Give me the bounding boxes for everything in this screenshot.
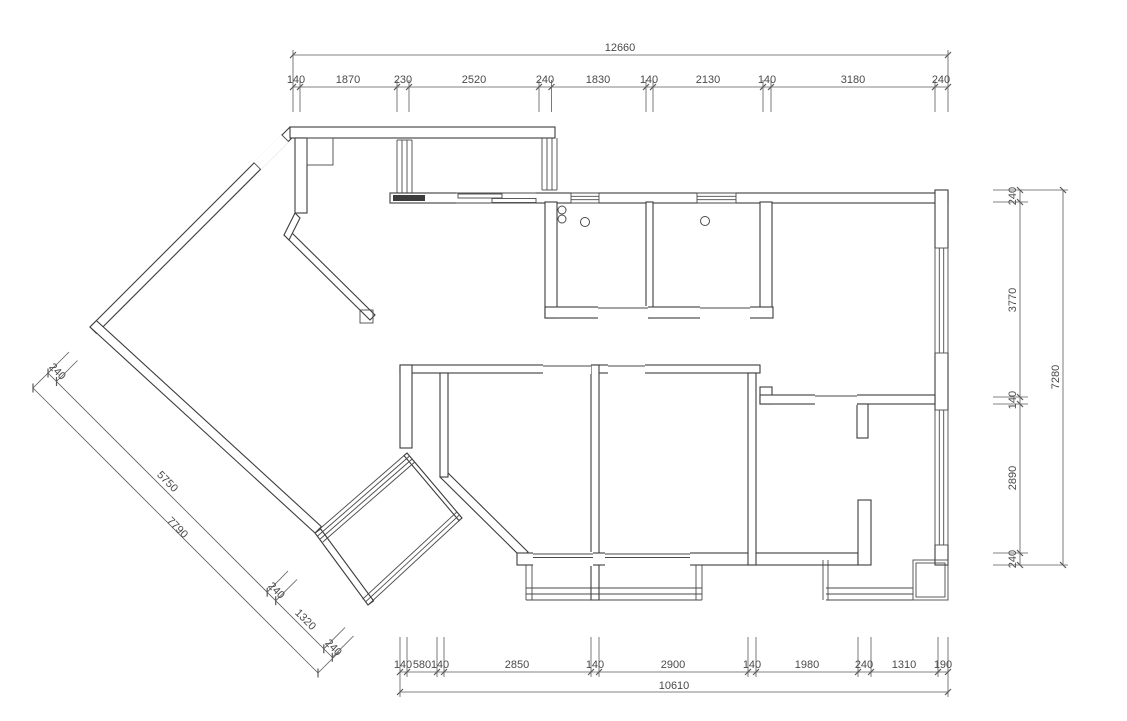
dim-label: 2900 (661, 659, 685, 671)
dim-label: 2890 (1007, 466, 1019, 490)
fixtures-layer (558, 206, 710, 227)
floor-plan-canvas: 1401870230252024018301402130140318024012… (0, 0, 1127, 721)
wall (858, 500, 871, 565)
wall (290, 127, 555, 138)
wall (440, 373, 448, 477)
dim-label: 190 (934, 659, 952, 671)
plan-line (320, 459, 412, 539)
wall (748, 373, 756, 565)
wall-diagonal (315, 529, 374, 605)
dim-label: 240 (932, 74, 950, 86)
wall-opening (934, 248, 949, 353)
dim-label: 240 (855, 659, 873, 671)
dim-label: 140 (743, 659, 761, 671)
fixture-circle (701, 217, 710, 226)
wall-opening (697, 192, 736, 204)
dim-label: 140 (287, 74, 305, 86)
dim-label: 1830 (586, 74, 610, 86)
plan-line (323, 462, 415, 542)
wall (646, 202, 653, 318)
dim-label: 1980 (795, 659, 819, 671)
plan-detail (916, 563, 945, 597)
door-opening (254, 135, 289, 170)
plan-line (368, 518, 462, 605)
dim-label: 140 (394, 659, 412, 671)
dim-label: 5750 (154, 469, 180, 495)
dim-label: 1320 (292, 607, 318, 633)
dim-label: 240 (536, 74, 554, 86)
dim-label: 12660 (605, 42, 636, 54)
wall (295, 138, 307, 213)
dim-label: 240 (46, 361, 67, 382)
wall (400, 365, 412, 448)
wall-opening (571, 192, 599, 204)
plan-line (318, 456, 410, 536)
wall-solid (393, 195, 425, 201)
plan-detail (307, 138, 333, 165)
dim-label: 580 (413, 659, 431, 671)
right-chain: 240377014028902407280 (993, 187, 1068, 568)
bottom-chain: 1405801402850140290014019802401310190106… (394, 637, 952, 697)
dim-label: 10610 (659, 680, 690, 692)
plan-line (315, 453, 407, 533)
dim-label: 140 (758, 74, 776, 86)
dim-label: 2130 (696, 74, 720, 86)
dim-label: 1870 (336, 74, 360, 86)
dim-label: 140 (1007, 391, 1019, 409)
wall-opening (934, 410, 949, 545)
dim-label: 1310 (892, 659, 916, 671)
wall (545, 202, 557, 318)
fixture-circle (558, 206, 566, 214)
dim-label: 2520 (462, 74, 486, 86)
dim-label: 240 (1007, 550, 1019, 568)
dim-label: 3180 (841, 74, 865, 86)
wall-opening (608, 364, 645, 374)
dim-label: 2850 (505, 659, 529, 671)
dim-label: 3770 (1007, 288, 1019, 312)
dim-label: 7790 (164, 515, 190, 541)
dim-label: 140 (640, 74, 658, 86)
dim-label: 240 (1007, 187, 1019, 205)
floor-plan-page: 1401870230252024018301402130140318024012… (0, 0, 1127, 721)
plan-detail (913, 560, 948, 600)
wall-opening (543, 364, 591, 374)
fixture-circle (558, 215, 566, 223)
dim-label: 240 (322, 637, 343, 658)
dim-label: 7280 (1050, 365, 1062, 389)
plan-line (365, 515, 459, 602)
wall (857, 404, 868, 438)
dim-label: 140 (586, 659, 604, 671)
dim-label: 140 (431, 659, 449, 671)
dim-label: 230 (394, 74, 412, 86)
fixture-circle (581, 218, 590, 227)
top-chain: 1401870230252024018301402130140318024012… (287, 42, 951, 112)
wall (760, 202, 772, 313)
plan-line (363, 512, 457, 599)
dim-label: 240 (265, 580, 286, 601)
wall-diagonal (284, 230, 375, 320)
wall-diagonal (90, 321, 321, 533)
